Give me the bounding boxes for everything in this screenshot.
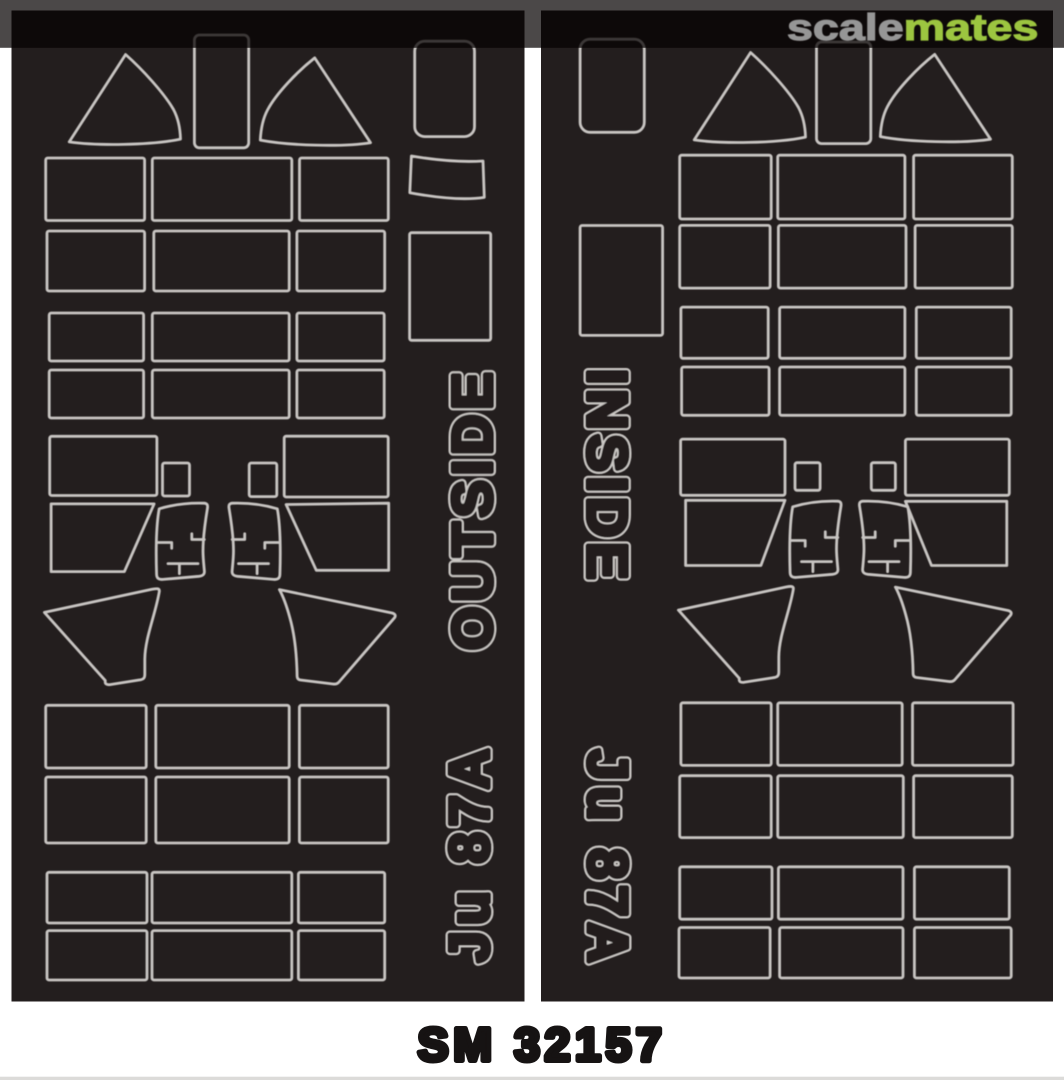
- svg-text:scalemates: scalemates: [787, 7, 1038, 48]
- svg-text:OUTSIDE: OUTSIDE: [441, 368, 504, 651]
- svg-text:SM 32157: SM 32157: [418, 1019, 667, 1071]
- svg-text:Ju 87A: Ju 87A: [438, 743, 501, 963]
- svg-text:INSIDE: INSIDE: [576, 369, 639, 585]
- svg-text:Ju 87A: Ju 87A: [577, 749, 640, 969]
